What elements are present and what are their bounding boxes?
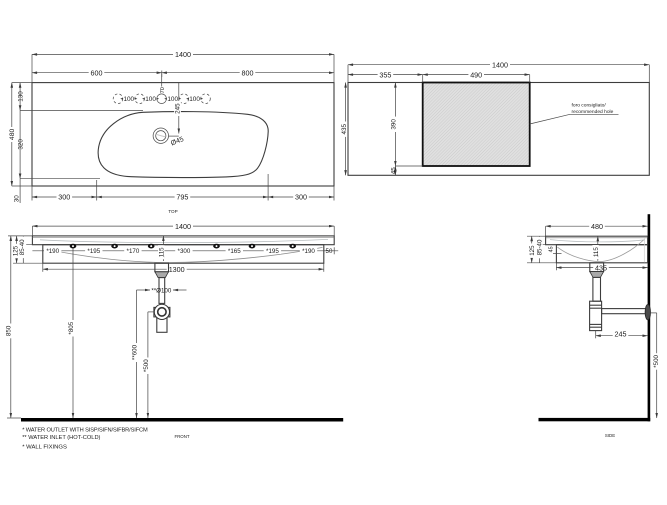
svg-text:**600: **600 <box>131 344 138 360</box>
svg-text:600: 600 <box>91 68 103 77</box>
svg-text:*190: *190 <box>46 248 59 255</box>
svg-text:*190: *190 <box>302 248 315 255</box>
svg-text:45: 45 <box>548 246 554 252</box>
svg-text:130: 130 <box>17 91 24 102</box>
svg-text:800: 800 <box>242 68 254 77</box>
svg-text:795: 795 <box>176 193 188 202</box>
svg-text:*165: *165 <box>228 248 241 255</box>
svg-text:100: 100 <box>189 96 200 103</box>
svg-text:*170: *170 <box>127 248 140 255</box>
svg-text:125: 125 <box>529 245 536 256</box>
svg-text:TOP: TOP <box>168 209 177 214</box>
svg-text:70: 70 <box>160 87 166 93</box>
svg-text:490: 490 <box>470 70 482 79</box>
svg-text:*500: *500 <box>653 354 660 367</box>
svg-text:1400: 1400 <box>175 50 191 59</box>
svg-text:45: 45 <box>391 167 398 175</box>
svg-text:1400: 1400 <box>175 222 191 231</box>
svg-text:* WALL FIXINGS: * WALL FIXINGS <box>22 445 67 451</box>
svg-text:85-40: 85-40 <box>537 239 544 255</box>
svg-text:435: 435 <box>341 123 348 134</box>
svg-text:1400: 1400 <box>492 60 508 69</box>
svg-text:300: 300 <box>295 193 307 202</box>
svg-text:*300: *300 <box>178 248 191 255</box>
svg-text:480: 480 <box>591 222 603 231</box>
svg-text:300: 300 <box>58 193 70 202</box>
svg-text:50: 50 <box>326 248 333 255</box>
svg-text:480: 480 <box>9 129 16 141</box>
svg-text:** WATER INLET (HOT-COLD): ** WATER INLET (HOT-COLD) <box>22 435 100 441</box>
svg-text:850: 850 <box>6 325 13 336</box>
svg-text:FRONT: FRONT <box>174 434 189 439</box>
svg-text:**Ø100: **Ø100 <box>151 287 172 294</box>
svg-text:115: 115 <box>159 247 166 257</box>
svg-text:*500: *500 <box>143 359 150 372</box>
svg-text:115: 115 <box>593 247 600 257</box>
svg-text:30: 30 <box>14 195 21 203</box>
svg-text:435: 435 <box>595 263 607 272</box>
svg-text:*805: *805 <box>68 321 75 334</box>
svg-text:355: 355 <box>379 70 391 79</box>
svg-text:100: 100 <box>123 96 134 103</box>
svg-text:85-40: 85-40 <box>19 239 26 255</box>
svg-text:100: 100 <box>145 96 156 103</box>
svg-text:390: 390 <box>391 119 398 130</box>
svg-text:1300: 1300 <box>169 265 185 274</box>
svg-text:* WATER OUTLET WITH SISP/SIFN: * WATER OUTLET WITH SISP/SIFN/SIFBR/SIFC… <box>22 427 148 433</box>
svg-text:SIDE: SIDE <box>605 433 615 438</box>
svg-text:*195: *195 <box>266 248 279 255</box>
svg-text:*195: *195 <box>87 248 100 255</box>
svg-text:foro consigliato/: foro consigliato/ <box>572 102 607 108</box>
svg-text:245: 245 <box>175 103 182 114</box>
svg-text:245: 245 <box>615 329 627 338</box>
svg-text:320: 320 <box>17 139 24 150</box>
svg-text:recommended hole: recommended hole <box>572 109 614 115</box>
